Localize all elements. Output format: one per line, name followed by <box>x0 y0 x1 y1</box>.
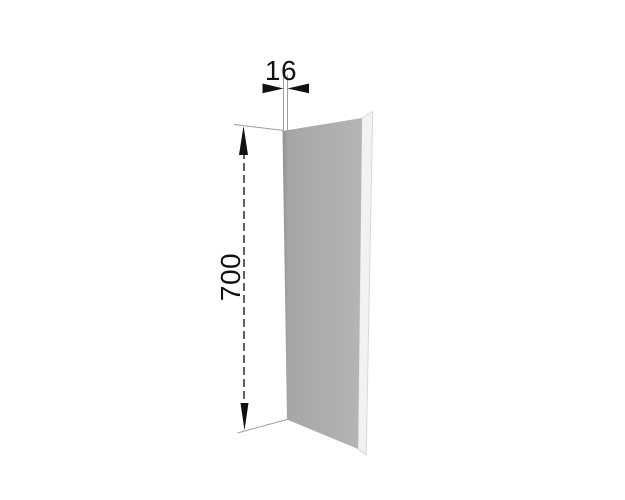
panel-dimension-drawing: 16 700 <box>0 0 625 500</box>
height-extension-line-top <box>234 125 284 131</box>
drawing-canvas: 16 700 <box>0 0 625 500</box>
panel-front-face <box>283 118 363 449</box>
height-arrowhead-bottom <box>241 403 249 431</box>
thickness-dimension-label: 16 <box>265 55 297 86</box>
height-arrowhead-top <box>239 126 248 155</box>
height-dimension-label: 700 <box>215 253 246 301</box>
